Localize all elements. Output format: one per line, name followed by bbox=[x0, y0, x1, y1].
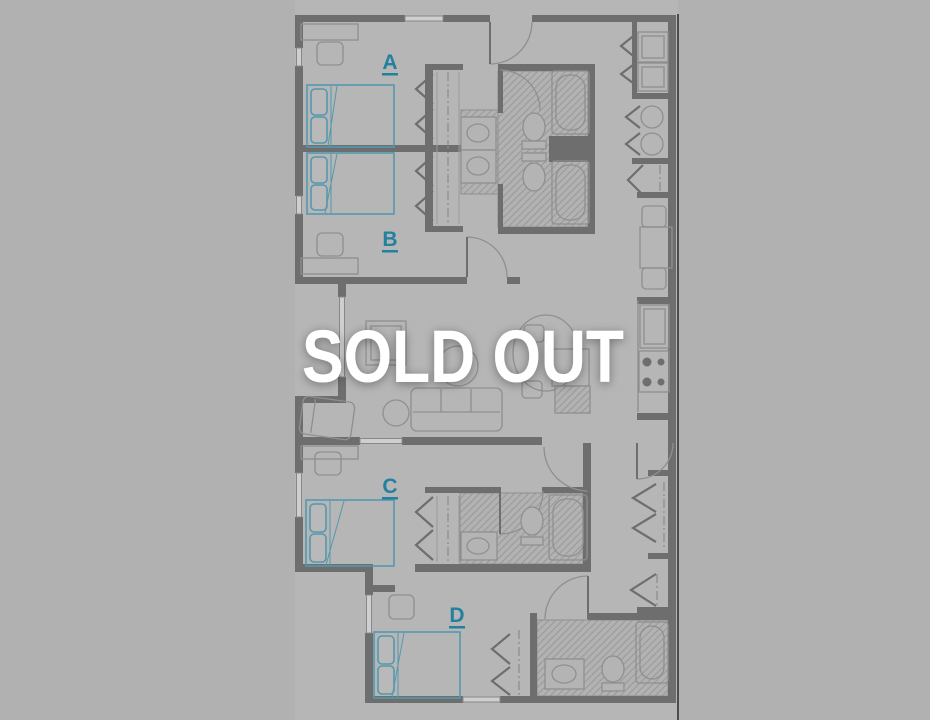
floor-plan-svg: A B C D SOLD OUT bbox=[0, 0, 930, 720]
sold-out-label: SOLD OUT bbox=[302, 315, 624, 398]
room-a-label: A bbox=[382, 51, 397, 74]
sink-basin bbox=[552, 665, 576, 683]
window bbox=[367, 595, 372, 633]
toilet bbox=[602, 656, 624, 682]
toilet bbox=[523, 163, 545, 191]
toilet-tank bbox=[522, 141, 546, 149]
room-d-label: D bbox=[449, 604, 464, 627]
plan-right-border-line bbox=[677, 14, 679, 720]
toilet bbox=[523, 113, 545, 141]
sink-basin bbox=[467, 157, 489, 175]
window bbox=[360, 439, 402, 444]
window bbox=[405, 16, 443, 21]
sink-basin bbox=[467, 124, 489, 142]
toilet-tank bbox=[522, 153, 546, 161]
window bbox=[297, 196, 302, 214]
toilet bbox=[521, 507, 543, 535]
window bbox=[463, 697, 500, 702]
toilet-tank bbox=[602, 683, 624, 691]
sink-basin bbox=[467, 538, 489, 554]
window bbox=[297, 473, 302, 517]
window bbox=[297, 48, 302, 66]
toilet-tank bbox=[521, 537, 543, 545]
sold-out-floor-plan-image: A B C D SOLD OUT bbox=[0, 0, 930, 720]
room-c-label: C bbox=[382, 475, 397, 498]
room-b-label: B bbox=[382, 228, 397, 251]
